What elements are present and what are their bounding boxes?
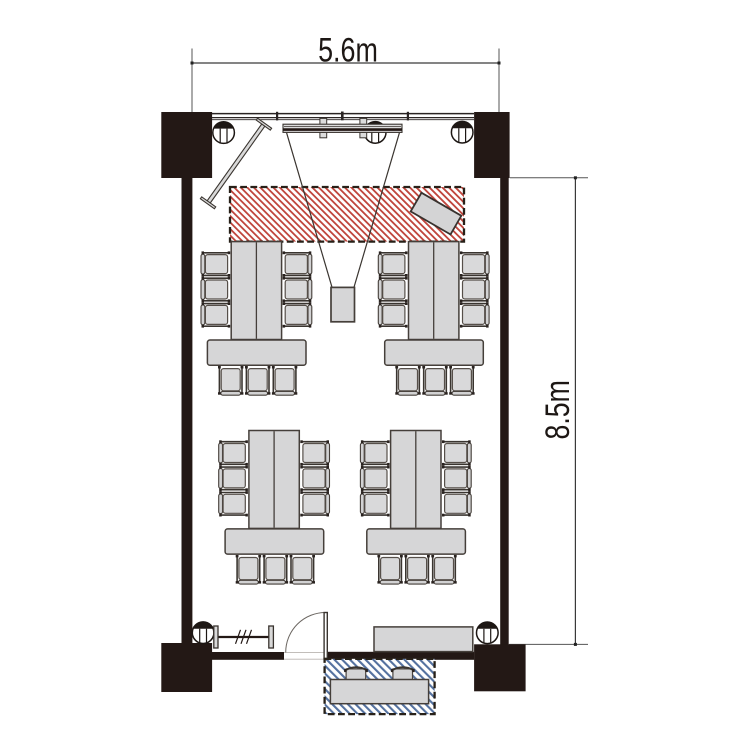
svg-text:8.5m: 8.5m bbox=[539, 380, 577, 439]
svg-text:5.6m: 5.6m bbox=[318, 30, 378, 69]
